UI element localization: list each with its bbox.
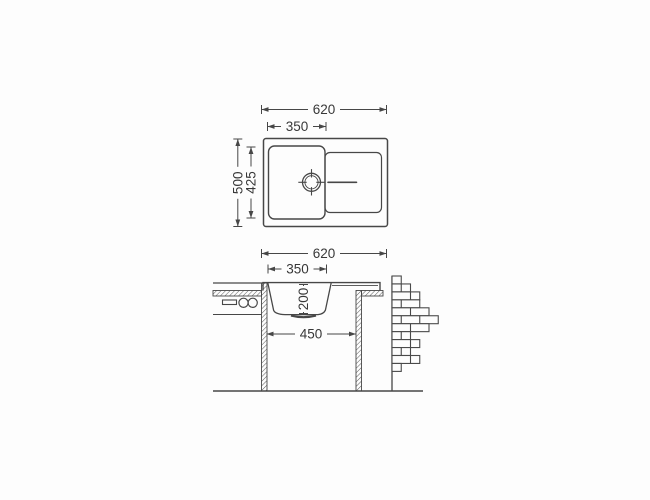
cabinet-wall-right	[356, 291, 362, 392]
brick-wall	[392, 276, 438, 391]
brick	[392, 276, 401, 284]
dim-label: 425	[244, 171, 259, 194]
sink-rim-line	[263, 283, 380, 291]
dim-arrow	[320, 267, 327, 272]
countertop-slab-right	[362, 291, 384, 297]
dim-label: 450	[300, 327, 323, 342]
dim-arrow	[268, 267, 275, 272]
dim-350-section: 350	[268, 262, 327, 277]
dim-620-section: 620	[262, 246, 387, 261]
brick	[392, 316, 438, 324]
clip-circle	[239, 298, 248, 307]
dim-arrow	[262, 107, 269, 112]
drain-icon	[298, 169, 324, 195]
dim-350-top: 350	[268, 119, 327, 134]
clip-circle	[248, 298, 257, 307]
clip-bar	[223, 300, 237, 305]
dim-425-left: 425	[244, 147, 259, 218]
dim-label: 350	[286, 262, 309, 277]
dim-arrow	[235, 139, 240, 146]
dim-label: 350	[286, 119, 309, 134]
countertop-slab-left	[213, 291, 262, 297]
top-view: 620 350 500	[230, 102, 387, 226]
dim-450-section: 450	[267, 327, 357, 342]
dim-arrow	[380, 107, 387, 112]
cabinet-wall-left	[262, 283, 268, 391]
dim-arrow	[249, 211, 254, 218]
drain-inner-circle	[305, 176, 318, 189]
dim-label: 620	[313, 246, 336, 261]
brick	[392, 300, 420, 308]
brick	[392, 356, 420, 364]
dim-arrow	[349, 332, 356, 337]
brick	[392, 340, 420, 348]
dim-arrow	[235, 220, 240, 227]
dim-200-section: 200	[296, 285, 311, 314]
dim-arrow	[249, 147, 254, 154]
brick	[392, 292, 420, 300]
dim-arrow	[268, 124, 275, 129]
dim-arrow	[267, 332, 274, 337]
dim-arrow	[262, 251, 269, 256]
dim-label: 620	[313, 102, 336, 117]
dim-arrow	[319, 124, 326, 129]
sink-section-profile	[263, 283, 380, 318]
sink-dimension-drawing: 620 350 500	[0, 0, 650, 500]
dim-label: 200	[296, 288, 311, 311]
fixing-clip-symbol	[223, 298, 258, 307]
dim-620-top: 620	[262, 102, 387, 117]
brick	[392, 363, 401, 371]
drain-recess	[291, 316, 316, 318]
dim-arrow	[380, 251, 387, 256]
section-view: 620 350	[213, 246, 438, 391]
